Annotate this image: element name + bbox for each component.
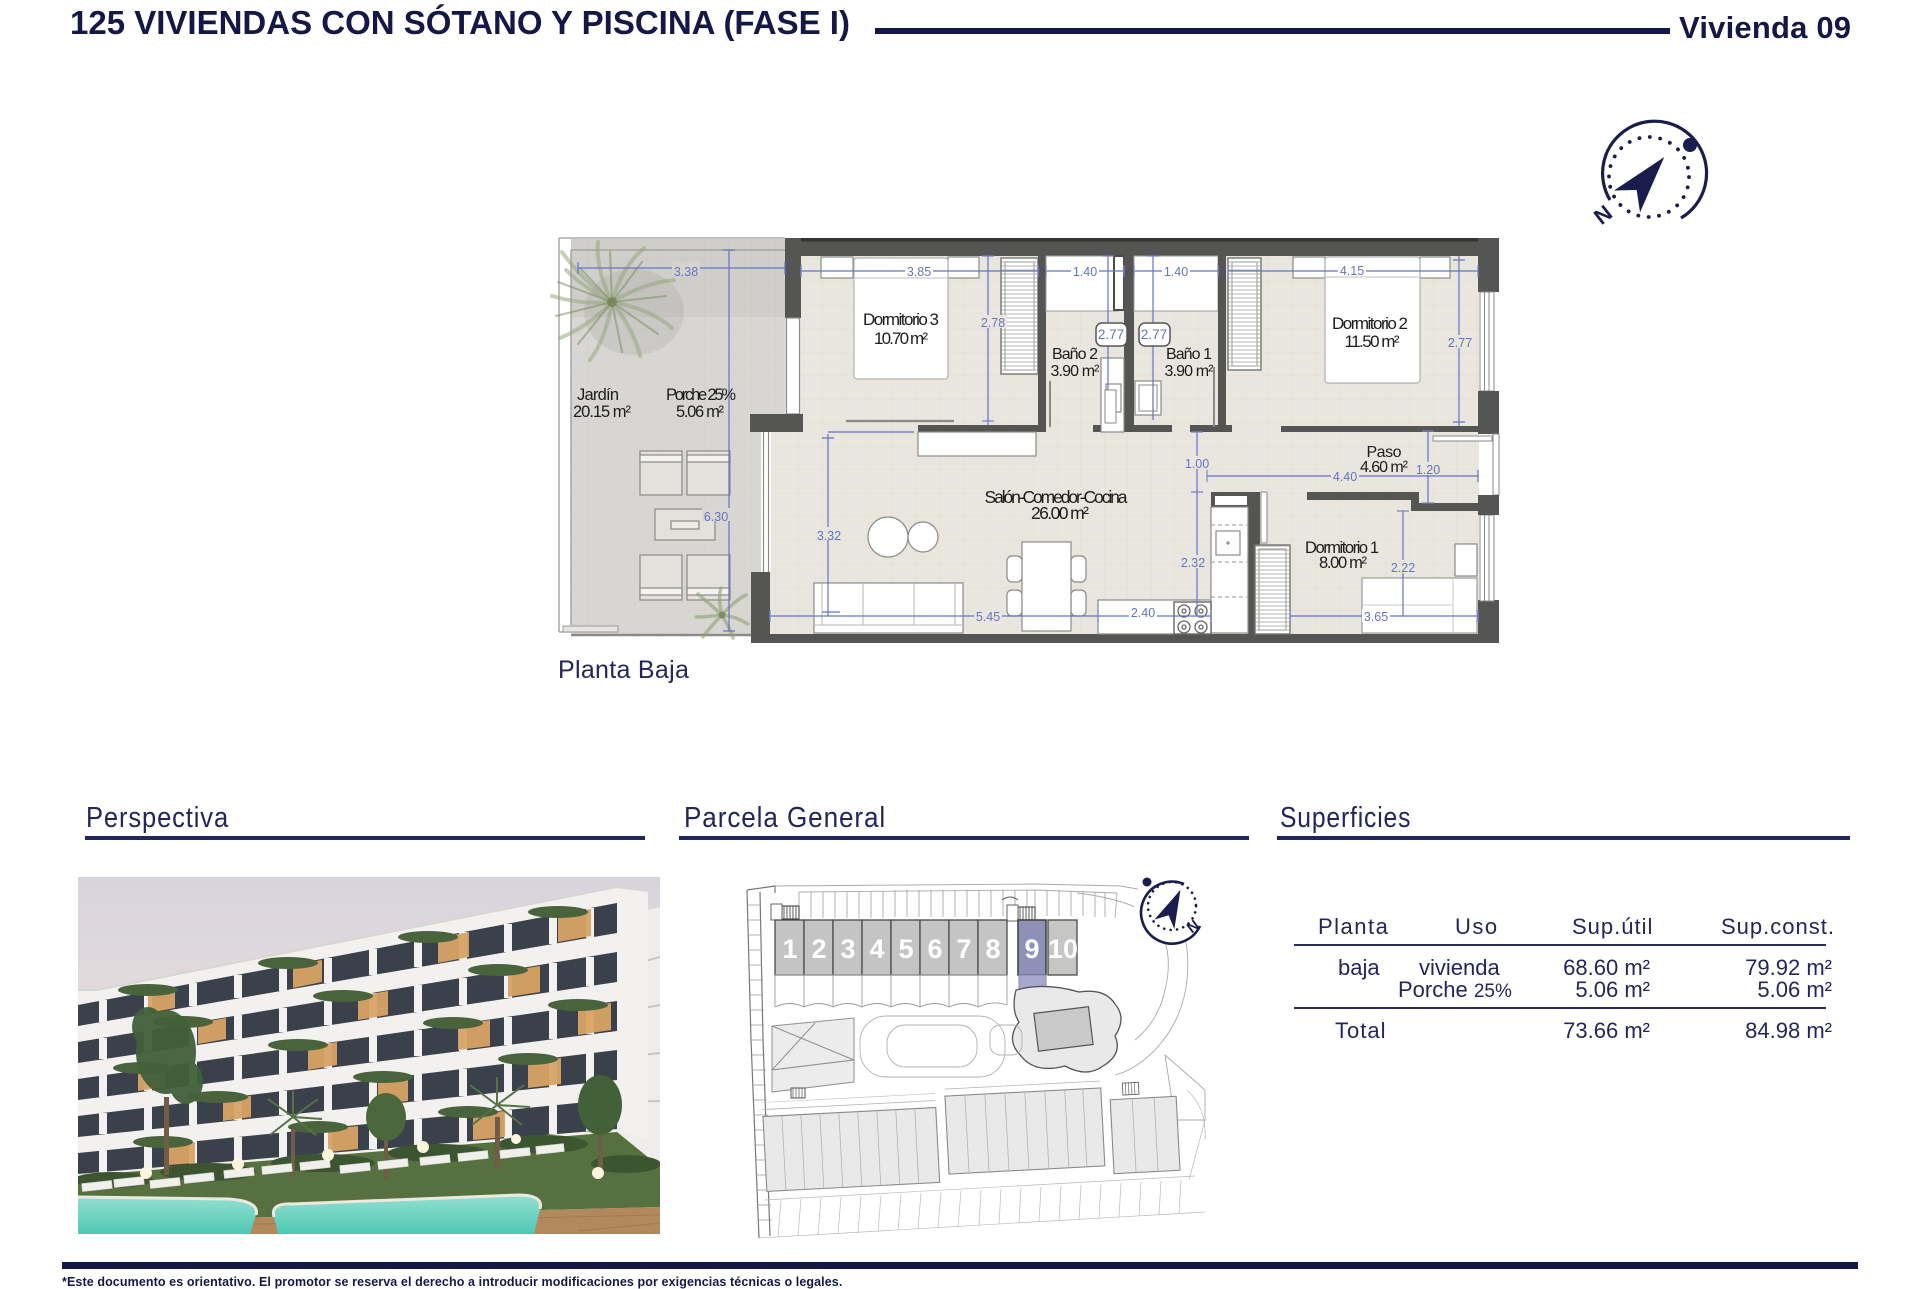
svg-text:4.15: 4.15 <box>1340 264 1364 278</box>
svg-text:10.70 m²: 10.70 m² <box>874 329 928 348</box>
svg-text:9: 9 <box>1024 934 1039 964</box>
svg-text:6.30: 6.30 <box>704 510 728 524</box>
svg-text:5: 5 <box>898 934 913 964</box>
svg-text:7: 7 <box>956 934 971 964</box>
svg-text:Jardín: Jardín <box>577 386 619 404</box>
svg-text:1.40: 1.40 <box>1073 265 1097 279</box>
svg-text:1.00: 1.00 <box>1185 457 1209 471</box>
svg-text:6: 6 <box>927 934 942 964</box>
svg-text:Baño 1: Baño 1 <box>1166 346 1212 363</box>
svg-text:Porche 25%: Porche 25% <box>666 386 736 404</box>
svg-text:2.77: 2.77 <box>1098 327 1124 342</box>
svg-text:3.90 m²: 3.90 m² <box>1165 363 1215 380</box>
svg-text:2.77: 2.77 <box>1141 327 1167 342</box>
svg-text:4.60 m²: 4.60 m² <box>1360 459 1409 476</box>
svg-text:2.22: 2.22 <box>1391 561 1415 575</box>
svg-text:2.40: 2.40 <box>1131 606 1155 620</box>
svg-text:Dormitorio 2: Dormitorio 2 <box>1332 314 1408 333</box>
svg-text:4.40: 4.40 <box>1333 470 1357 484</box>
svg-text:3: 3 <box>840 934 855 964</box>
svg-text:N: N <box>1589 200 1617 229</box>
svg-text:1.20: 1.20 <box>1416 463 1440 477</box>
svg-text:2.78: 2.78 <box>981 316 1005 330</box>
svg-text:3.85: 3.85 <box>907 265 931 279</box>
svg-text:8.00 m²: 8.00 m² <box>1319 554 1368 572</box>
svg-text:3.38: 3.38 <box>674 265 698 279</box>
svg-text:Baño 2: Baño 2 <box>1052 346 1098 363</box>
svg-text:1: 1 <box>782 934 797 964</box>
svg-text:10: 10 <box>1048 934 1078 964</box>
svg-text:4: 4 <box>869 934 884 964</box>
svg-text:Dormitorio 3: Dormitorio 3 <box>863 310 939 329</box>
svg-text:20.15 m²: 20.15 m² <box>573 403 632 421</box>
svg-text:5.45: 5.45 <box>976 610 1000 624</box>
svg-text:26.00 m²: 26.00 m² <box>1031 503 1089 523</box>
svg-text:3.32: 3.32 <box>817 529 841 543</box>
svg-text:3.65: 3.65 <box>1364 610 1388 624</box>
svg-text:5.06 m²: 5.06 m² <box>676 403 725 421</box>
svg-text:2.77: 2.77 <box>1448 336 1472 350</box>
svg-text:2: 2 <box>811 934 826 964</box>
svg-text:1.40: 1.40 <box>1164 265 1188 279</box>
svg-text:8: 8 <box>985 934 1000 964</box>
svg-text:11.50 m²: 11.50 m² <box>1345 332 1400 351</box>
svg-text:3.90 m²: 3.90 m² <box>1051 363 1101 380</box>
svg-text:2.32: 2.32 <box>1181 556 1205 570</box>
